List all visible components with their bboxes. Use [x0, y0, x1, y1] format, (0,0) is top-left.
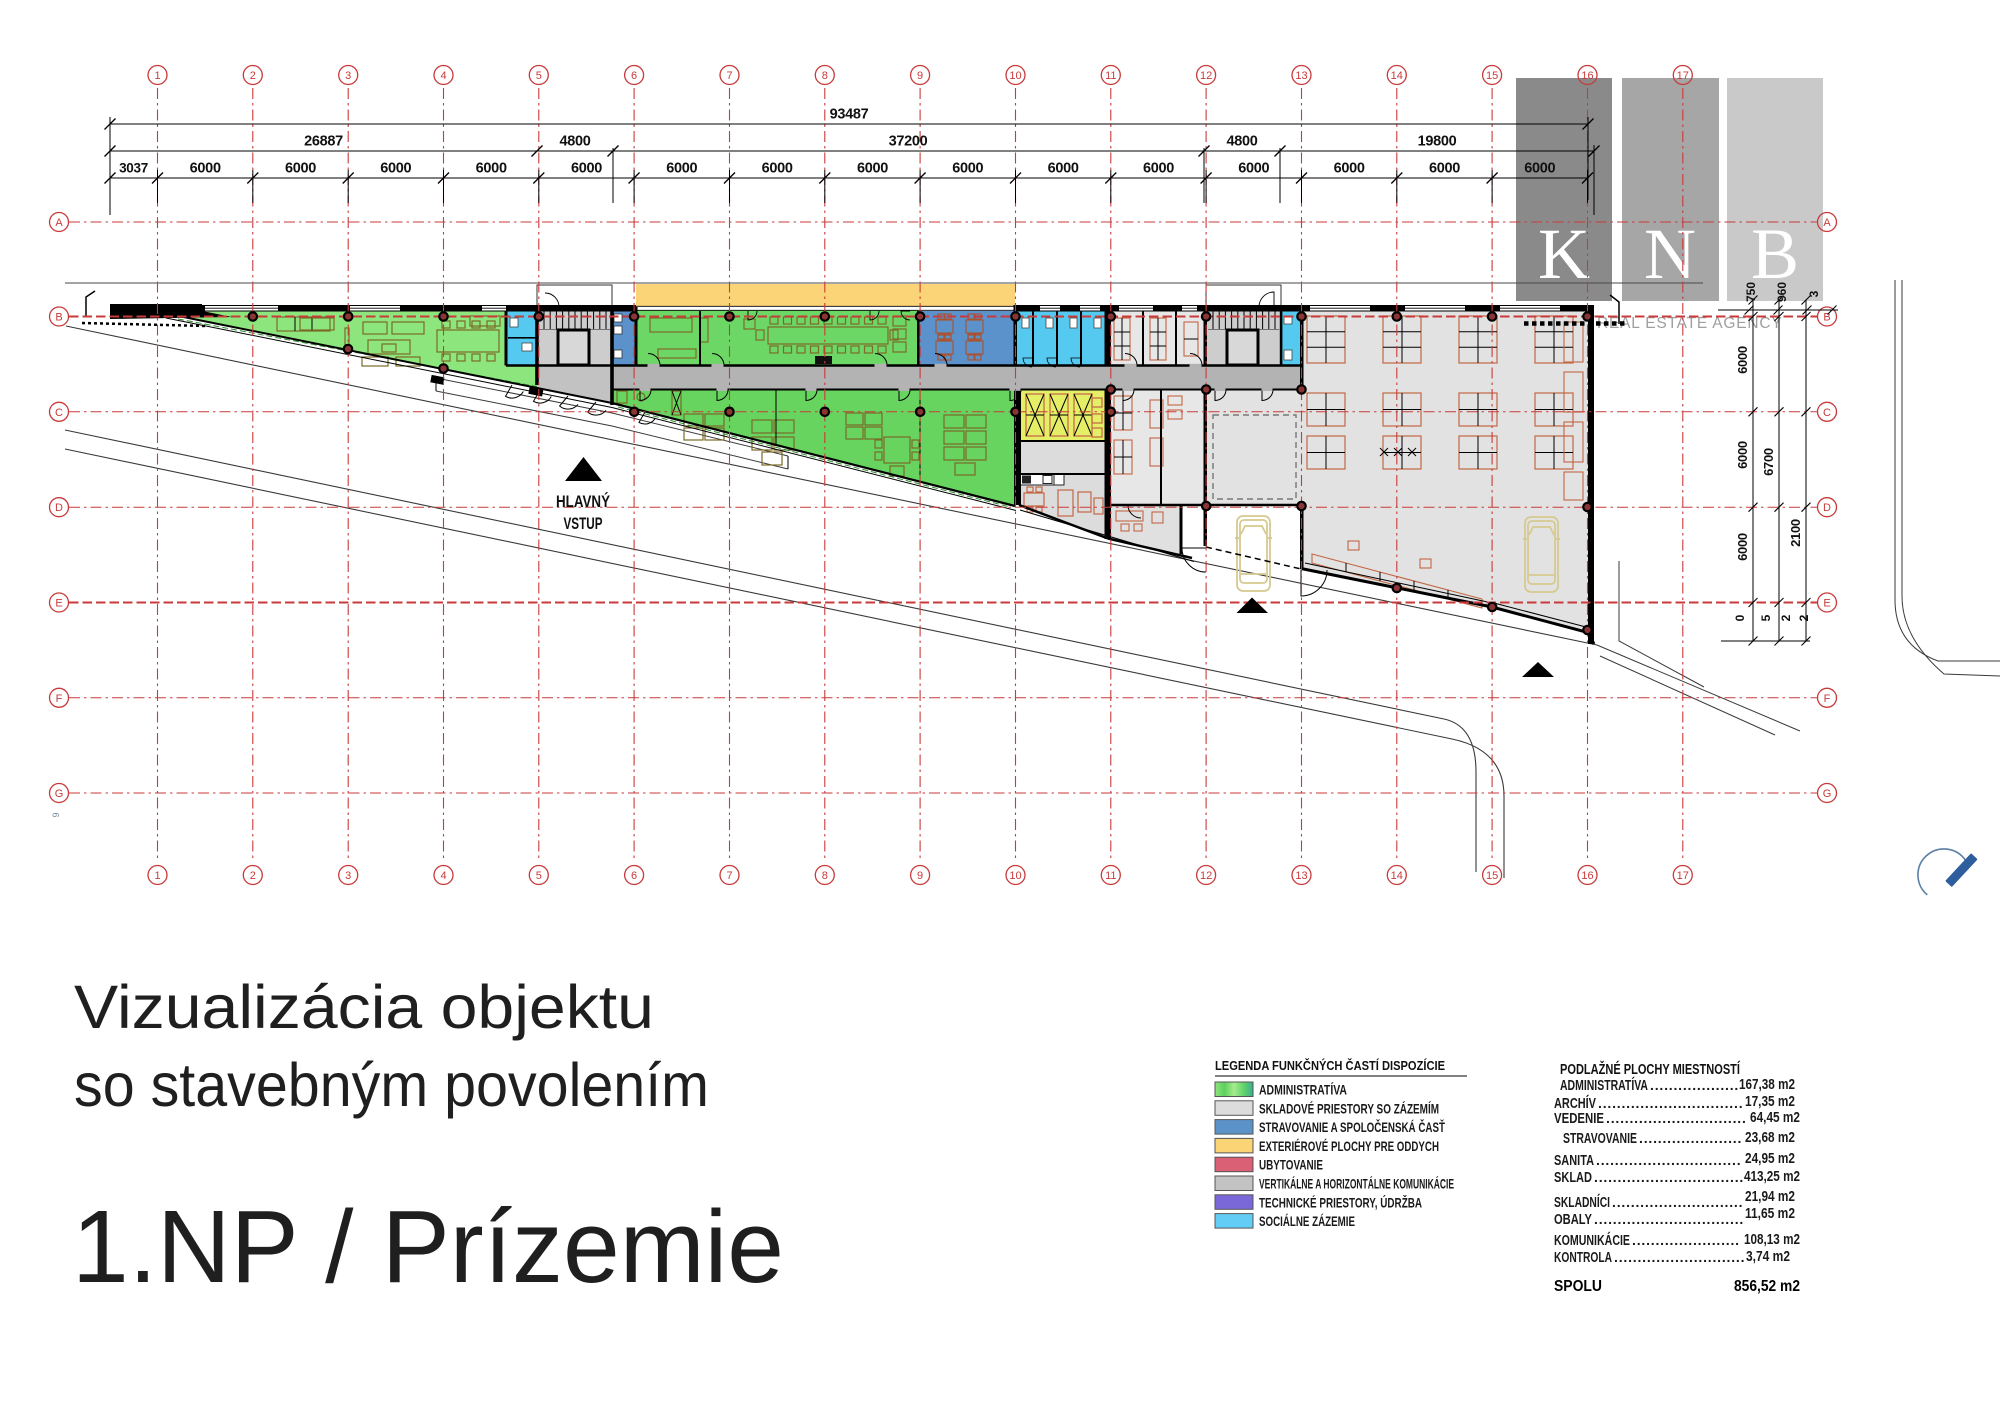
svg-text:9: 9: [917, 70, 923, 82]
svg-text:.......................: .......................: [1632, 1232, 1740, 1248]
svg-text:A: A: [55, 217, 63, 229]
svg-text:167,38 m2: 167,38 m2: [1739, 1077, 1795, 1093]
svg-text:37200: 37200: [889, 134, 928, 150]
svg-text:..............................: ................................: [1594, 1169, 1744, 1185]
svg-text:E: E: [55, 598, 62, 610]
svg-text:C: C: [55, 407, 63, 419]
svg-text:6000: 6000: [1143, 161, 1174, 177]
svg-text:D: D: [1823, 502, 1831, 514]
svg-text:6000: 6000: [190, 161, 221, 177]
svg-text:6000: 6000: [571, 161, 602, 177]
svg-text:960: 960: [1775, 282, 1789, 302]
svg-text:11: 11: [1105, 870, 1116, 882]
svg-text:STRAVOVANIE A SPOLOČENSKÁ ČASŤ: STRAVOVANIE A SPOLOČENSKÁ ČASŤ: [1259, 1118, 1445, 1135]
svg-text:17: 17: [1677, 870, 1689, 882]
svg-text:6000: 6000: [1524, 161, 1555, 177]
svg-text:KOMUNIKÁCIE: KOMUNIKÁCIE: [1554, 1232, 1630, 1249]
svg-text:LEGENDA FUNKČNÝCH ČASTÍ DISPOZ: LEGENDA FUNKČNÝCH ČASTÍ DISPOZÍCIE: [1215, 1058, 1445, 1073]
svg-text:6000: 6000: [1334, 161, 1365, 177]
svg-text:8: 8: [822, 70, 828, 82]
svg-text:21,94 m2: 21,94 m2: [1745, 1189, 1795, 1205]
svg-text:93487: 93487: [830, 107, 869, 123]
svg-text:15: 15: [1486, 70, 1498, 82]
svg-text:3: 3: [1807, 290, 1821, 297]
svg-text:2: 2: [1779, 614, 1793, 621]
svg-text:10: 10: [1009, 70, 1021, 82]
svg-text:108,13 m2: 108,13 m2: [1744, 1232, 1800, 1248]
svg-text:...................: ...................: [1650, 1077, 1739, 1093]
svg-text:............................: ............................: [1614, 1249, 1745, 1265]
svg-text:A: A: [1823, 217, 1831, 229]
svg-text:SKLADNÍCI: SKLADNÍCI: [1554, 1194, 1610, 1211]
svg-text:8: 8: [822, 870, 828, 882]
svg-text:Vizualizácia objektu: Vizualizácia objektu: [74, 973, 654, 1041]
svg-text:4800: 4800: [559, 134, 590, 150]
svg-text:5: 5: [536, 870, 542, 882]
svg-text:856,52 m2: 856,52 m2: [1734, 1278, 1800, 1295]
svg-text:2: 2: [250, 870, 256, 882]
svg-text:......................: ......................: [1639, 1130, 1742, 1146]
svg-text:0: 0: [1733, 614, 1747, 621]
svg-text:2100: 2100: [1788, 519, 1803, 547]
svg-text:4: 4: [440, 70, 446, 82]
svg-text:2: 2: [1797, 614, 1811, 621]
svg-text:3: 3: [345, 70, 351, 82]
svg-text:5: 5: [1759, 614, 1773, 621]
svg-text:7: 7: [726, 870, 732, 882]
svg-text:3: 3: [345, 870, 351, 882]
svg-text:ARCHÍV: ARCHÍV: [1554, 1095, 1596, 1112]
svg-text:6000: 6000: [476, 161, 507, 177]
svg-text:750: 750: [1744, 282, 1758, 302]
svg-text:6: 6: [631, 70, 637, 82]
svg-text:OBALY: OBALY: [1554, 1212, 1592, 1228]
svg-text:..............................: ................................: [1594, 1211, 1744, 1227]
svg-text:STRAVOVANIE: STRAVOVANIE: [1563, 1131, 1637, 1147]
svg-text:............................: ............................: [1612, 1194, 1743, 1210]
svg-text:TECHNICKÉ PRIESTORY, ÚDRŽBA: TECHNICKÉ PRIESTORY, ÚDRŽBA: [1259, 1193, 1422, 1210]
svg-text:6000: 6000: [666, 161, 697, 177]
svg-text:3,74 m2: 3,74 m2: [1746, 1249, 1790, 1265]
svg-text:2: 2: [250, 70, 256, 82]
svg-text:1.NP / Prízemie: 1.NP / Prízemie: [72, 1189, 784, 1304]
svg-text:F: F: [56, 693, 63, 705]
svg-text:..............................: ..............................: [1606, 1110, 1747, 1126]
svg-text:11: 11: [1105, 70, 1116, 82]
svg-text:14: 14: [1391, 70, 1403, 82]
svg-text:KONTROLA: KONTROLA: [1554, 1250, 1612, 1266]
svg-text:12: 12: [1200, 70, 1212, 82]
svg-text:19800: 19800: [1418, 134, 1457, 150]
svg-text:6000: 6000: [285, 161, 316, 177]
svg-text:9: 9: [917, 870, 923, 882]
svg-text:EXTERIÉROVÉ PLOCHY PRE ODDYCH: EXTERIÉROVÉ PLOCHY PRE ODDYCH: [1259, 1138, 1439, 1154]
svg-text:3037: 3037: [119, 161, 148, 176]
svg-text:6000: 6000: [1735, 346, 1750, 374]
svg-text:13: 13: [1295, 870, 1307, 882]
svg-text:6000: 6000: [857, 161, 888, 177]
svg-text:6000: 6000: [1429, 161, 1460, 177]
svg-text:VSTUP: VSTUP: [564, 514, 603, 533]
svg-text:16: 16: [1581, 70, 1593, 82]
svg-text:64,45 m2: 64,45 m2: [1750, 1110, 1800, 1126]
svg-text:6000: 6000: [762, 161, 793, 177]
svg-text:12: 12: [1200, 870, 1212, 882]
svg-text:4800: 4800: [1226, 134, 1257, 150]
svg-text:6000: 6000: [1735, 441, 1750, 469]
svg-text:ADMINISTRATÍVA: ADMINISTRATÍVA: [1560, 1077, 1648, 1094]
svg-text:7: 7: [726, 70, 732, 82]
svg-text:REAL ESTATE AGENCY: REAL ESTATE AGENCY: [1597, 315, 1783, 332]
svg-text:PODLAŽNÉ PLOCHY MIESTNOSTÍ: PODLAŽNÉ PLOCHY MIESTNOSTÍ: [1560, 1060, 1741, 1078]
svg-text:1: 1: [154, 870, 160, 882]
svg-text:11,65 m2: 11,65 m2: [1745, 1206, 1795, 1222]
svg-text:N: N: [1644, 214, 1696, 294]
svg-text:ADMINISTRATÍVA: ADMINISTRATÍVA: [1259, 1082, 1347, 1098]
svg-text:13: 13: [1295, 70, 1307, 82]
svg-text:17: 17: [1677, 70, 1689, 82]
svg-text:6000: 6000: [952, 161, 983, 177]
svg-text:SPOLU: SPOLU: [1554, 1278, 1602, 1295]
svg-text:so stavebným povolením: so stavebným povolením: [74, 1051, 709, 1119]
svg-text:10: 10: [1009, 870, 1021, 882]
svg-text:UBYTOVANIE: UBYTOVANIE: [1259, 1157, 1323, 1173]
svg-text:6000: 6000: [1735, 533, 1750, 561]
svg-text:17,35 m2: 17,35 m2: [1745, 1094, 1795, 1110]
svg-text:HLAVNÝ: HLAVNÝ: [556, 492, 611, 511]
svg-text:D: D: [55, 502, 63, 514]
svg-text:..............................: ...............................: [1598, 1095, 1743, 1111]
svg-text:B: B: [1823, 312, 1830, 324]
svg-text:413,25 m2: 413,25 m2: [1744, 1169, 1800, 1185]
svg-text:G: G: [55, 788, 64, 800]
svg-text:E: E: [1823, 598, 1830, 610]
svg-text:6700: 6700: [1761, 448, 1776, 476]
svg-text:SANITA: SANITA: [1554, 1153, 1594, 1169]
svg-text:14: 14: [1391, 870, 1403, 882]
svg-text:VERTIKÁLNE A HORIZONTÁLNE KOMU: VERTIKÁLNE A HORIZONTÁLNE KOMUNIKÁCIE: [1259, 1176, 1454, 1192]
svg-text:15: 15: [1486, 870, 1498, 882]
svg-text:SOCIÁLNE ZÁZEMIE: SOCIÁLNE ZÁZEMIE: [1259, 1213, 1355, 1229]
svg-text:SKLAD: SKLAD: [1554, 1170, 1592, 1186]
svg-text:C: C: [1823, 407, 1831, 419]
svg-text:5: 5: [536, 70, 542, 82]
svg-text:6000: 6000: [380, 161, 411, 177]
svg-text:G: G: [1823, 788, 1832, 800]
svg-text:16: 16: [1581, 870, 1593, 882]
svg-text:4: 4: [440, 870, 446, 882]
svg-text:VEDENIE: VEDENIE: [1554, 1111, 1604, 1127]
svg-text:K: K: [1538, 214, 1590, 294]
svg-text:6000: 6000: [1238, 161, 1269, 177]
svg-text:24,95 m2: 24,95 m2: [1745, 1151, 1795, 1167]
svg-text:B: B: [55, 312, 62, 324]
svg-text:6: 6: [631, 870, 637, 882]
svg-text:SKLADOVÉ PRIESTORY SO ZÁZEMÍM: SKLADOVÉ PRIESTORY SO ZÁZEMÍM: [1259, 1100, 1439, 1116]
svg-text:26887: 26887: [304, 134, 343, 150]
svg-text:1: 1: [154, 70, 160, 82]
svg-text:9: 9: [51, 812, 61, 817]
svg-text:..............................: ...............................: [1596, 1152, 1741, 1168]
svg-text:6000: 6000: [1048, 161, 1079, 177]
svg-text:23,68 m2: 23,68 m2: [1745, 1130, 1795, 1146]
svg-text:F: F: [1824, 693, 1831, 705]
